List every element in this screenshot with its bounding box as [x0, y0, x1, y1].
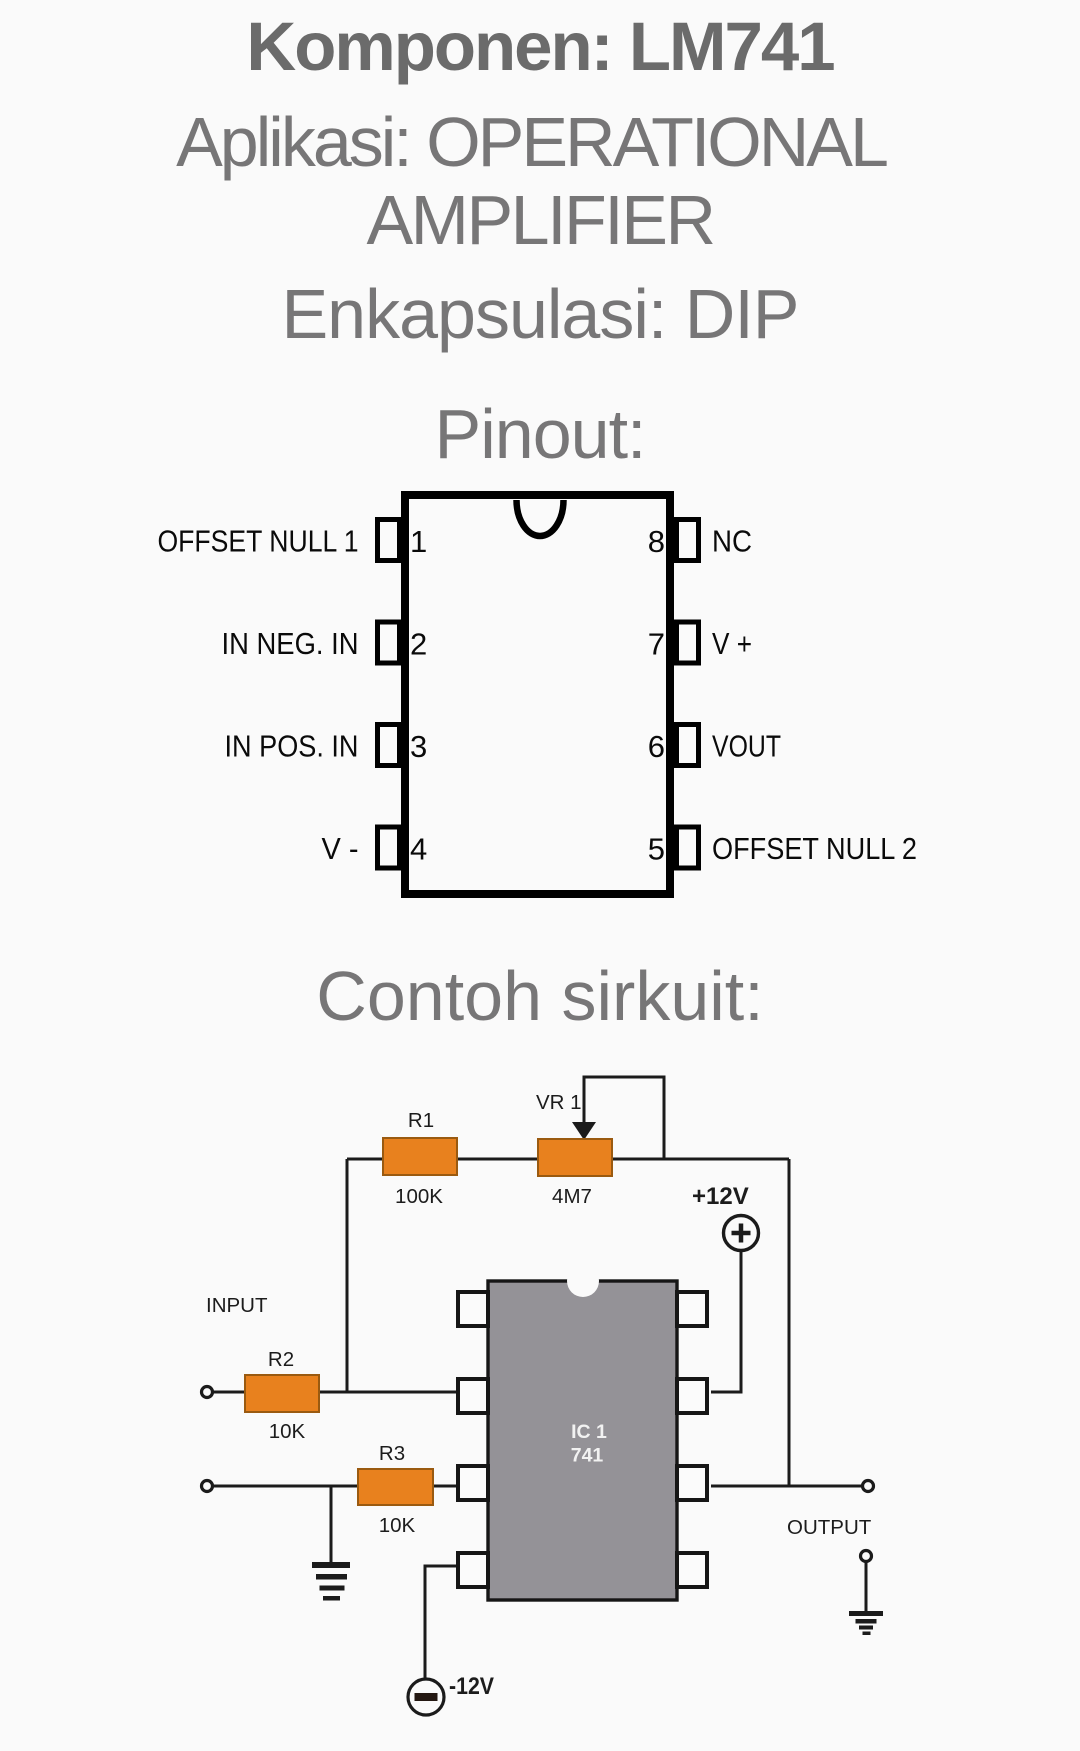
svg-text:V -: V - — [322, 832, 359, 866]
svg-text:4M7: 4M7 — [552, 1185, 592, 1208]
svg-text:5: 5 — [648, 832, 665, 867]
svg-text:OFFSET NULL 1: OFFSET NULL 1 — [158, 525, 359, 559]
svg-text:VOUT: VOUT — [712, 730, 781, 764]
svg-text:VR 1: VR 1 — [536, 1091, 582, 1114]
svg-text:4: 4 — [410, 832, 427, 867]
svg-text:V +: V + — [712, 627, 752, 661]
svg-text:1: 1 — [410, 524, 427, 559]
svg-text:10K: 10K — [379, 1514, 416, 1537]
svg-text:+12V: +12V — [692, 1183, 749, 1210]
svg-text:IN POS. IN: IN POS. IN — [225, 730, 359, 764]
svg-text:6: 6 — [648, 729, 665, 764]
svg-text:2: 2 — [410, 627, 427, 662]
svg-text:IN NEG. IN: IN NEG. IN — [222, 627, 359, 661]
svg-text:OUTPUT: OUTPUT — [787, 1516, 872, 1539]
svg-text:3: 3 — [410, 729, 427, 764]
svg-text:10K: 10K — [269, 1420, 306, 1443]
svg-text:741: 741 — [571, 1445, 604, 1467]
svg-text:NC: NC — [712, 525, 752, 559]
svg-text:8: 8 — [648, 524, 665, 559]
svg-text:7: 7 — [648, 627, 665, 662]
svg-text:R2: R2 — [268, 1348, 294, 1371]
svg-text:100K: 100K — [395, 1185, 443, 1208]
svg-text:INPUT: INPUT — [206, 1294, 268, 1317]
svg-text:R3: R3 — [379, 1442, 405, 1465]
svg-text:OFFSET NULL 2: OFFSET NULL 2 — [712, 832, 917, 866]
svg-text:R1: R1 — [408, 1109, 434, 1132]
svg-text:IC 1: IC 1 — [571, 1421, 607, 1443]
svg-text:-12V: -12V — [449, 1673, 494, 1700]
